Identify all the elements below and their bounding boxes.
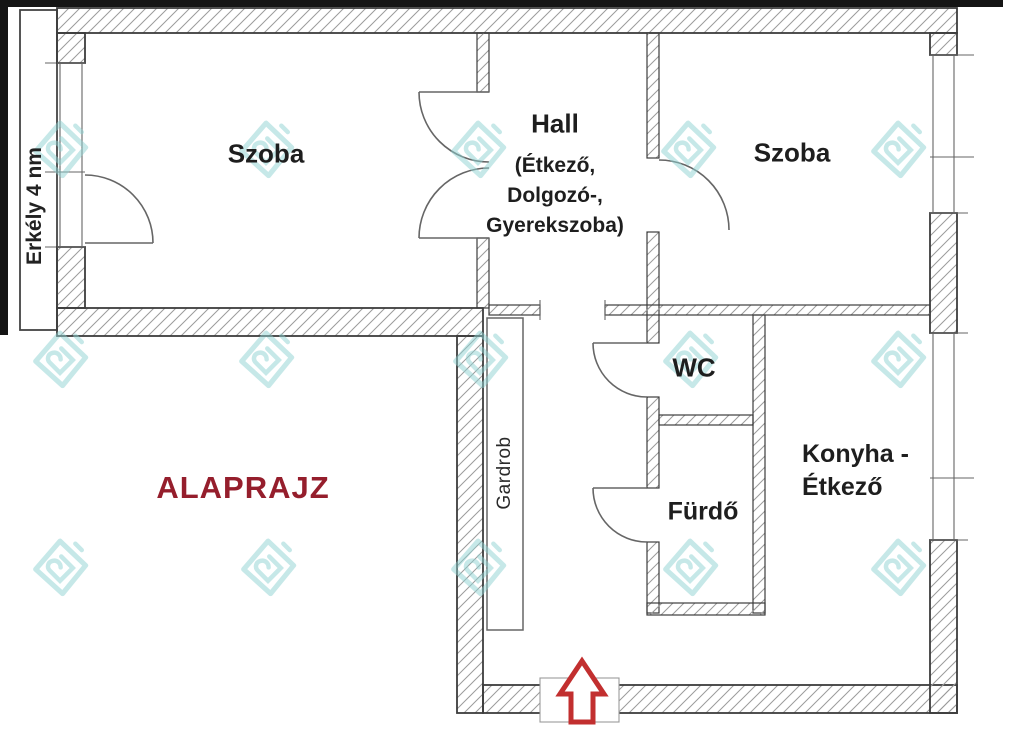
room-label-konyha: Konyha - Étkező	[802, 438, 909, 504]
room-label-szoba-right: Szoba	[754, 138, 831, 169]
room-label-furdo: Fürdő	[668, 498, 739, 527]
room-label-hall: Hall	[531, 109, 579, 140]
room-label-wc: WC	[672, 353, 715, 384]
floor-plan-page: Szoba Hall (Étkező, Dolgozó-, Gyerekszob…	[0, 0, 1024, 732]
entrance	[540, 661, 619, 722]
room-label-gardrob: Gardrob	[494, 436, 516, 509]
scan-frame-bars	[0, 0, 1003, 335]
room-label-hall-sub1: (Étkező,	[515, 154, 596, 178]
floor-plan-drawing	[0, 0, 1024, 732]
room-label-szoba-left: Szoba	[228, 139, 305, 170]
room-label-hall-sub3: Gyerekszoba)	[486, 214, 624, 238]
room-label-erkely: Erkély 4 nm	[23, 147, 47, 265]
page-title: ALAPRAJZ	[156, 470, 329, 506]
room-label-hall-sub2: Dolgozó-,	[507, 184, 603, 208]
room-label-konyha-line1: Konyha -	[802, 438, 909, 471]
room-label-konyha-line2: Étkező	[802, 471, 909, 504]
